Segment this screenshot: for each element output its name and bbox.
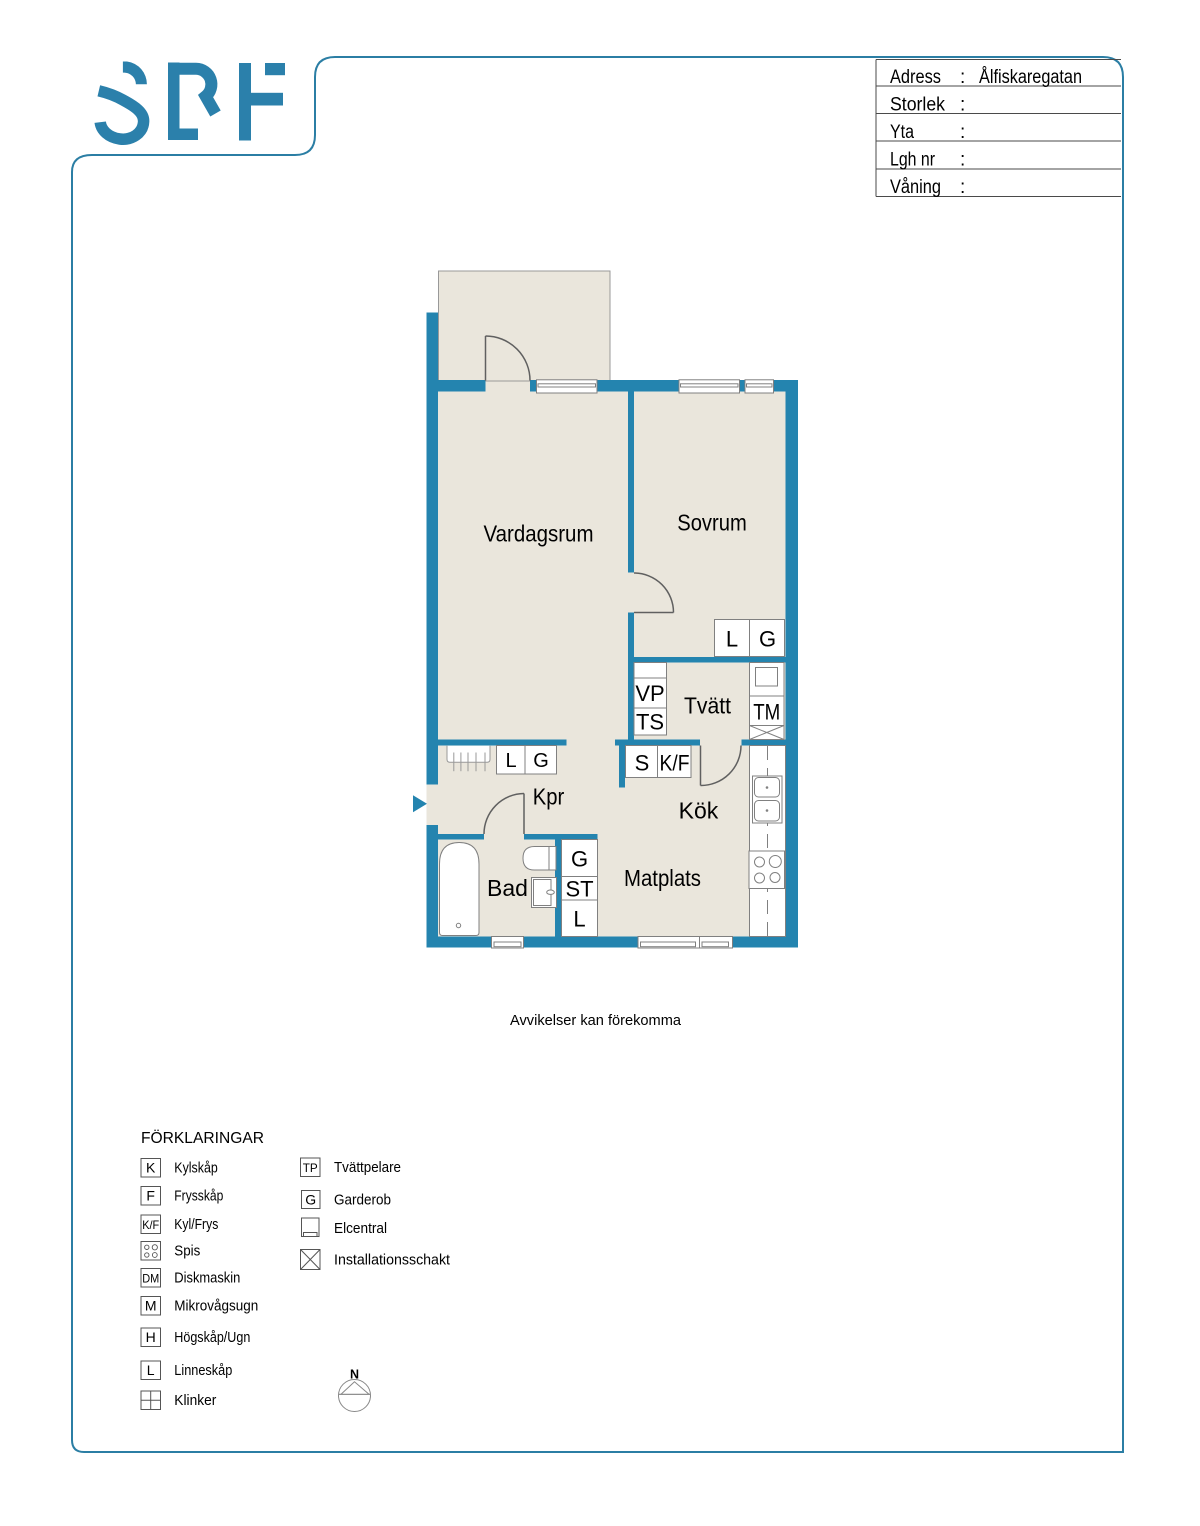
svg-text:Kök: Kök	[679, 798, 719, 824]
svg-text:G: G	[571, 847, 588, 872]
svg-text:L: L	[726, 627, 738, 652]
svg-text:Garderob: Garderob	[334, 1193, 391, 1209]
svg-text:K: K	[146, 1160, 156, 1176]
svg-text::: :	[960, 177, 965, 198]
svg-text:M: M	[145, 1298, 157, 1314]
svg-text:Kylskåp: Kylskåp	[174, 1161, 218, 1177]
svg-text:Kyl/Frys: Kyl/Frys	[174, 1217, 218, 1233]
svg-text::: :	[960, 67, 965, 88]
svg-text:G: G	[759, 627, 776, 652]
svg-text:Yta: Yta	[890, 122, 914, 143]
svg-text:Tvättpelare: Tvättpelare	[334, 1160, 401, 1176]
svg-text:TS: TS	[636, 710, 664, 735]
svg-text::: :	[960, 150, 965, 171]
svg-text:Mikrovågsugn: Mikrovågsugn	[174, 1299, 258, 1315]
svg-text:Högskåp/Ugn: Högskåp/Ugn	[174, 1330, 250, 1346]
svg-text:Ålfiskaregatan: Ålfiskaregatan	[979, 67, 1082, 88]
svg-text:Avvikelser kan förekomma: Avvikelser kan förekomma	[510, 1012, 682, 1029]
svg-text:Sovrum: Sovrum	[677, 510, 747, 536]
svg-text:Matplats: Matplats	[624, 865, 701, 891]
svg-text:Kpr: Kpr	[533, 784, 565, 810]
svg-text:Diskmaskin: Diskmaskin	[174, 1271, 240, 1287]
svg-text:Linneskåp: Linneskåp	[174, 1363, 232, 1379]
svg-text:Installationsschakt: Installationsschakt	[334, 1253, 450, 1269]
svg-text:FÖRKLARINGAR: FÖRKLARINGAR	[141, 1129, 264, 1147]
svg-text:TM: TM	[753, 700, 780, 725]
svg-text:K/F: K/F	[660, 751, 690, 776]
svg-text:L: L	[505, 750, 516, 772]
svg-text:Klinker: Klinker	[174, 1393, 216, 1409]
svg-text:Bad: Bad	[487, 875, 528, 901]
svg-text:G: G	[305, 1192, 316, 1208]
svg-text:F: F	[146, 1188, 155, 1204]
svg-text::: :	[960, 95, 965, 116]
svg-text:DM: DM	[142, 1272, 159, 1286]
svg-text:Tvätt: Tvätt	[684, 693, 732, 719]
svg-text:VP: VP	[635, 681, 664, 706]
svg-text::: :	[960, 122, 965, 143]
svg-text:S: S	[635, 751, 650, 776]
svg-text:L: L	[147, 1362, 155, 1378]
svg-text:Storlek: Storlek	[890, 95, 945, 116]
svg-text:Frysskåp: Frysskåp	[174, 1189, 223, 1205]
svg-text:G: G	[533, 750, 549, 772]
svg-text:K/F: K/F	[142, 1218, 159, 1232]
svg-text:Spis: Spis	[174, 1244, 200, 1260]
svg-text:TP: TP	[303, 1161, 318, 1175]
svg-text:Lgh nr: Lgh nr	[890, 150, 936, 171]
svg-text:H: H	[146, 1329, 156, 1345]
svg-text:Vardagsrum: Vardagsrum	[484, 521, 594, 547]
svg-text:Elcentral: Elcentral	[334, 1221, 387, 1237]
svg-text:Adress: Adress	[890, 67, 941, 88]
svg-text:Våning: Våning	[890, 177, 941, 198]
svg-text:L: L	[573, 907, 585, 932]
svg-text:ST: ST	[565, 877, 593, 902]
